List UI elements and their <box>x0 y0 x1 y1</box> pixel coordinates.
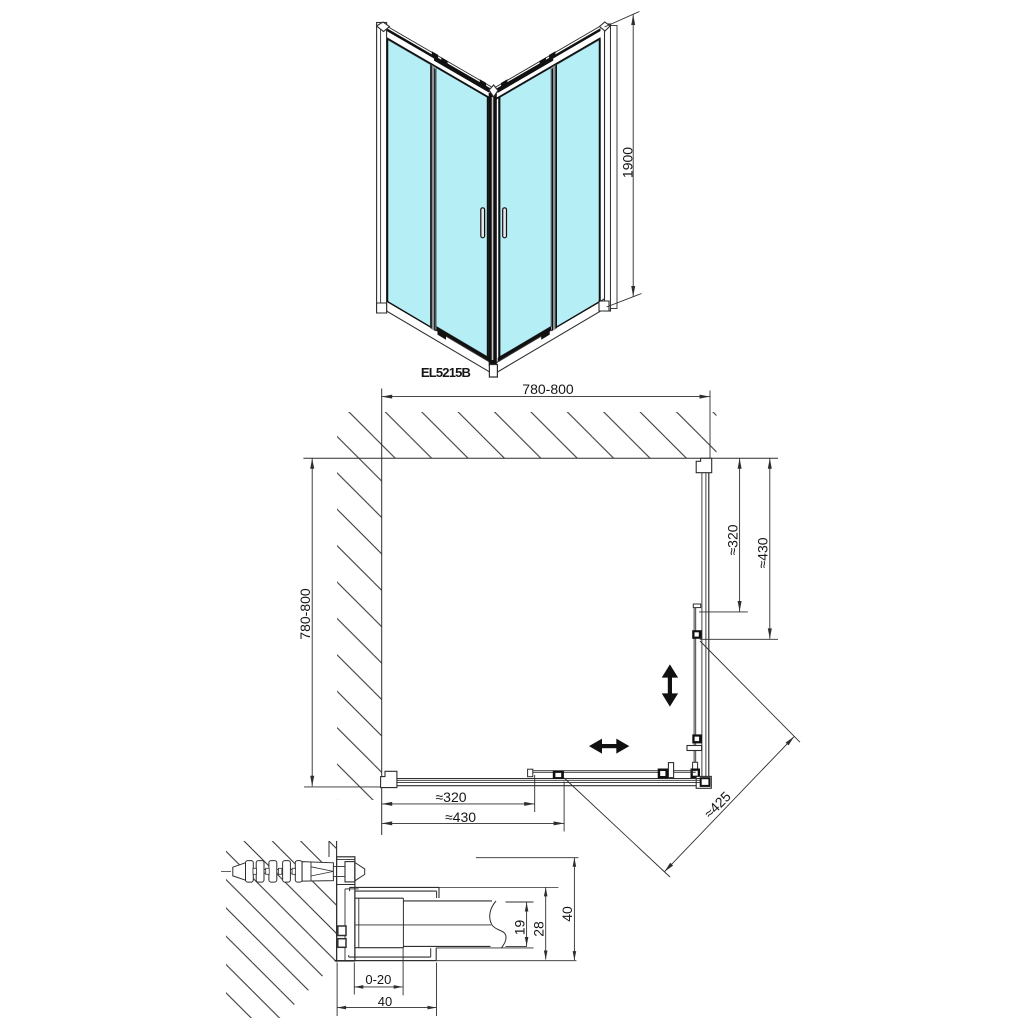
svg-text:780-800: 780-800 <box>297 588 313 640</box>
svg-text:1900: 1900 <box>619 147 635 178</box>
svg-text:≈320: ≈320 <box>435 789 466 805</box>
svg-text:28: 28 <box>530 921 546 937</box>
svg-text:40: 40 <box>559 906 575 922</box>
svg-text:780-800: 780-800 <box>522 381 574 397</box>
svg-text:40: 40 <box>378 994 392 1009</box>
svg-text:≈430: ≈430 <box>755 537 771 568</box>
svg-text:19: 19 <box>511 920 527 936</box>
svg-text:0-20: 0-20 <box>365 972 391 987</box>
svg-text:EL5215B: EL5215B <box>421 365 471 380</box>
svg-text:≈430: ≈430 <box>445 809 476 825</box>
svg-text:≈320: ≈320 <box>724 524 740 555</box>
